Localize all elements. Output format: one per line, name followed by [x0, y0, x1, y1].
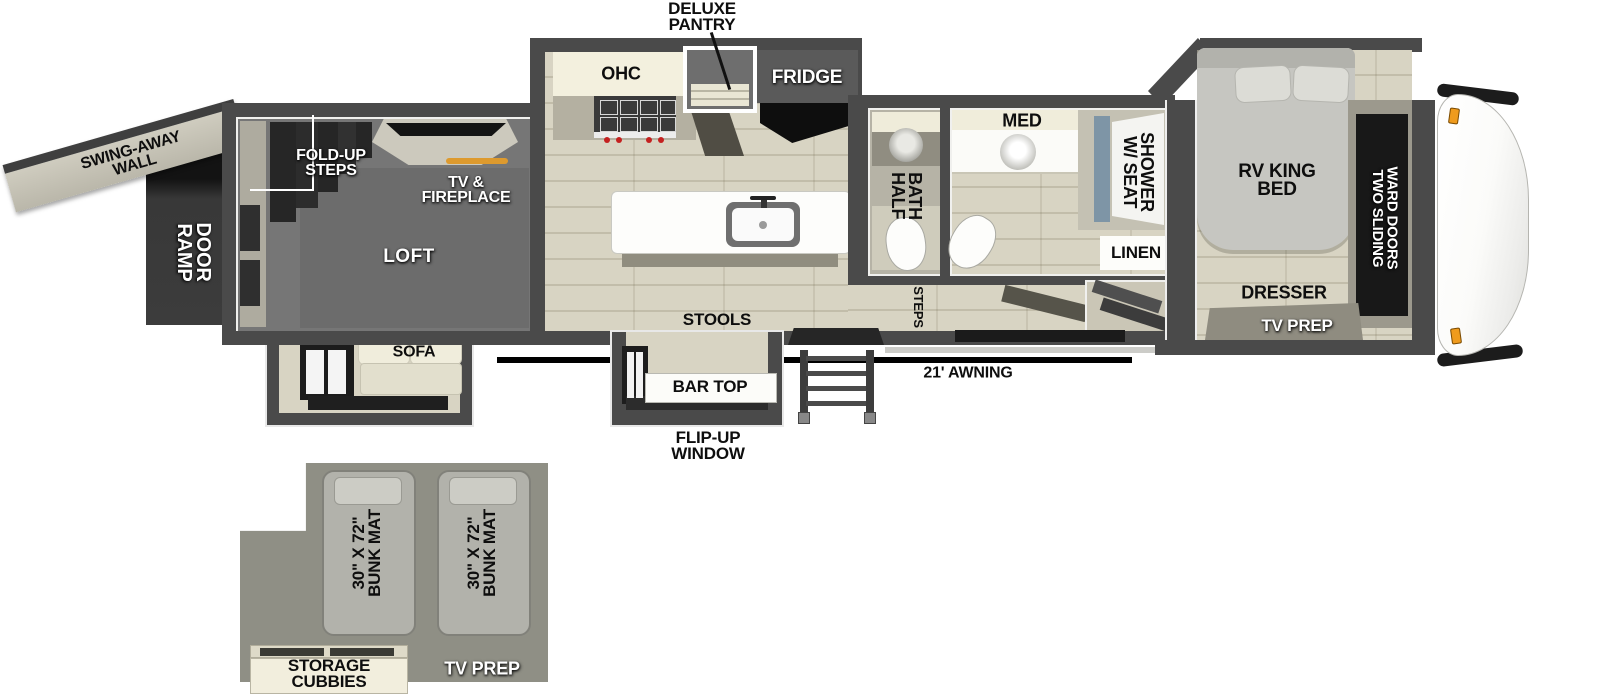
halfbath-sink	[889, 128, 923, 162]
bed-pillow	[1234, 65, 1292, 104]
ramp-door-label: RAMP DOOR	[174, 222, 212, 281]
burner	[600, 117, 618, 132]
bar-top-label: BAR TOP	[673, 379, 748, 395]
bedroom-right-wall	[1412, 100, 1435, 355]
pantry-shelves	[691, 84, 749, 106]
stove-knob	[658, 137, 664, 143]
steps-label: STEPS	[912, 286, 924, 328]
loft-label: LOFT	[383, 248, 435, 266]
bunk-mat-label: 30" X 72" BUNK MAT	[351, 509, 383, 597]
bed-pillow	[1292, 65, 1350, 104]
bottom-window-strip	[955, 330, 1125, 342]
garage-window	[240, 205, 260, 251]
burner	[640, 100, 658, 115]
stove-knob	[604, 137, 610, 143]
fridge-label: FRIDGE	[772, 69, 843, 87]
bunk-pillow	[449, 477, 517, 505]
tv-fireplace-label: TV & FIREPLACE	[422, 175, 511, 205]
linen-label: LINEN	[1111, 245, 1161, 261]
burner	[620, 100, 638, 115]
dresser-label: DRESSER	[1241, 284, 1327, 301]
entry-steps-rung	[806, 401, 866, 406]
tv-prep-loft-label: TV PREP	[444, 660, 520, 677]
half-bath-label: HALF BATH	[889, 172, 923, 220]
window-pane	[627, 352, 634, 398]
garage-window	[240, 260, 260, 306]
entry-door-mat	[788, 328, 884, 345]
bath-sink	[1000, 134, 1036, 170]
med-label: MED	[1002, 112, 1041, 129]
window-pane	[328, 350, 346, 394]
awning-label: 21' AWNING	[923, 365, 1012, 380]
flip-up-window-label: FLIP-UP WINDOW	[671, 430, 744, 462]
stove-knob	[616, 137, 622, 143]
bunk-pillow	[334, 477, 402, 505]
burner	[660, 117, 676, 132]
stools-label: STOOLS	[683, 312, 751, 328]
sofa-rug	[308, 396, 448, 410]
storage-cubby-slot	[260, 648, 324, 656]
storage-cubby-slot	[330, 648, 394, 656]
burner	[620, 117, 638, 132]
burner	[600, 100, 618, 115]
bunk-mat-label: 30" X 72" BUNK MAT	[466, 509, 498, 597]
entry-steps-rung	[806, 386, 866, 391]
ohc-label: OHC	[601, 65, 640, 82]
rv-floorplan: RAMP DOOR SWING-AWAY WALL FOLD-UP STEPS …	[0, 0, 1600, 694]
bedroom-bottom-wall	[1155, 340, 1435, 355]
entry-steps-foot	[864, 412, 876, 424]
entry-steps-rung	[806, 371, 866, 376]
sofa-seat	[360, 363, 462, 395]
tv-screen	[386, 123, 506, 136]
burner	[660, 100, 676, 115]
shower-glass	[1094, 116, 1110, 222]
window-pane	[636, 352, 643, 398]
fold-up-steps-label: FOLD-UP STEPS	[296, 148, 366, 178]
island-base-shadow	[622, 253, 838, 267]
rv-king-bed-label: RV KING BED	[1238, 163, 1315, 199]
bedroom-left-wall	[1165, 100, 1197, 345]
entry-steps-rail	[866, 350, 874, 414]
shower-label: SHOWER W/ SEAT	[1121, 132, 1155, 212]
fireplace-glow	[446, 158, 508, 164]
stove-knob	[646, 137, 652, 143]
faucet-base	[761, 200, 767, 208]
window-pane	[306, 350, 324, 394]
sink-drain	[759, 221, 767, 229]
deluxe-pantry-label: DELUXE PANTRY	[668, 1, 736, 33]
entry-steps-rung	[806, 356, 866, 361]
storage-cubbies-label: STORAGE CUBBIES	[288, 658, 370, 690]
wardrobe-label: TWO SLIDING WARD DOORS	[1370, 166, 1399, 269]
tv-prep-label: TV PREP	[1261, 318, 1332, 334]
burner	[640, 117, 658, 132]
sofa-label: SOFA	[393, 344, 436, 359]
front-cap	[1437, 94, 1529, 356]
marker-light	[1450, 327, 1462, 344]
entry-steps-foot	[798, 412, 810, 424]
